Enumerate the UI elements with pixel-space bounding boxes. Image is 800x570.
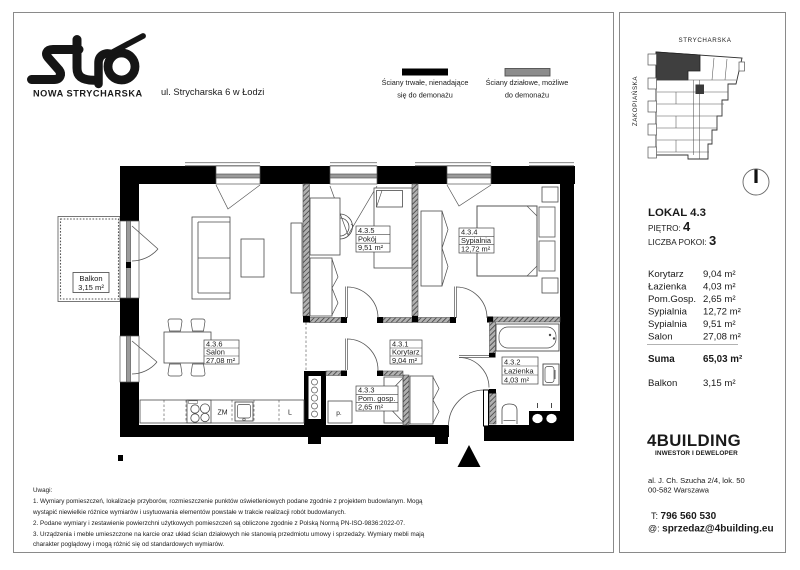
svg-text:3. Urządzenia i meble umieszcz: 3. Urządzenia i meble umieszczone na kar…: [33, 531, 425, 538]
svg-text:Korytarz: Korytarz: [648, 269, 684, 280]
svg-text:Uwagi:: Uwagi:: [33, 487, 52, 494]
svg-text:2,65 m²: 2,65 m²: [703, 294, 736, 305]
svg-text:4.3.2: 4.3.2: [504, 357, 520, 366]
svg-text:27,08 m²: 27,08 m²: [703, 332, 742, 343]
svg-text:ul. Strycharska 6 w Łodzi: ul. Strycharska 6 w Łodzi: [161, 87, 264, 97]
svg-text:Ściany trwałe, nienadające: Ściany trwałe, nienadające: [382, 78, 469, 87]
svg-text:2,65 m²: 2,65 m²: [358, 402, 384, 411]
svg-text:3,15 m²: 3,15 m²: [78, 283, 104, 292]
svg-text:9,04 m²: 9,04 m²: [703, 269, 736, 280]
svg-text:00-582 Warszawa: 00-582 Warszawa: [648, 486, 710, 495]
svg-text:T: 796 560 530: T: 796 560 530: [651, 511, 717, 522]
svg-text:2. Podane wymiary i zestawieni: 2. Podane wymiary i zestawienie powierzc…: [33, 520, 405, 527]
svg-text:Sypialnia: Sypialnia: [648, 319, 688, 330]
svg-text:Sypialnia: Sypialnia: [648, 307, 688, 318]
svg-text:9,04 m²: 9,04 m²: [392, 356, 418, 365]
svg-text:do demonażu: do demonażu: [505, 91, 549, 100]
svg-text:9,51 m²: 9,51 m²: [358, 243, 384, 252]
svg-text:Łazienka: Łazienka: [648, 282, 687, 293]
svg-text:p.: p.: [336, 410, 342, 417]
svg-text:Balkon: Balkon: [79, 274, 102, 283]
svg-text:Salon: Salon: [648, 332, 673, 343]
svg-text:wystąpić niewielkie różnice wy: wystąpić niewielkie różnice wymiarów i u…: [32, 509, 346, 516]
svg-text:al. J. Ch. Szucha 2/4, lok. 50: al. J. Ch. Szucha 2/4, lok. 50: [648, 476, 745, 485]
svg-text:1. Wymiary pomieszczeń, lokali: 1. Wymiary pomieszczeń, lokalizacje przy…: [33, 498, 423, 505]
svg-text:Ściany działowe, możliwe: Ściany działowe, możliwe: [486, 78, 569, 87]
svg-text:12,72 m²: 12,72 m²: [461, 244, 491, 253]
svg-text:Balkon: Balkon: [648, 378, 677, 389]
svg-text:Łazienka: Łazienka: [504, 366, 534, 375]
svg-text:L: L: [288, 410, 292, 417]
svg-text:9,51 m²: 9,51 m²: [703, 319, 736, 330]
svg-text:27,08 m²: 27,08 m²: [206, 356, 236, 365]
svg-text:NOWA STRYCHARSKA: NOWA STRYCHARSKA: [33, 89, 143, 99]
svg-text:4,03 m²: 4,03 m²: [703, 282, 736, 293]
svg-text:STRYCHARSKA: STRYCHARSKA: [679, 37, 732, 44]
svg-text:INWESTOR I DEWELOPER: INWESTOR I DEWELOPER: [655, 450, 738, 457]
svg-text:Suma: Suma: [648, 354, 675, 365]
svg-text:charakter poglądowy i mogą róż: charakter poglądowy i mogą różnić się od…: [33, 541, 224, 548]
svg-text:65,03 m²: 65,03 m²: [703, 354, 743, 365]
svg-text:się do demonażu: się do demonażu: [397, 91, 453, 100]
svg-text:ZM: ZM: [217, 410, 227, 417]
svg-text:4,03 m²: 4,03 m²: [504, 375, 530, 384]
svg-text:ZAKOPIAŃSKA: ZAKOPIAŃSKA: [632, 76, 639, 127]
svg-text:Pom.Gosp.: Pom.Gosp.: [648, 294, 696, 305]
svg-text:12,72 m²: 12,72 m²: [703, 307, 742, 318]
svg-text:3,15 m²: 3,15 m²: [703, 378, 736, 389]
svg-text:@: sprzedaz@4building.eu: @: sprzedaz@4building.eu: [648, 524, 774, 535]
svg-text:LOKAL 4.3: LOKAL 4.3: [648, 207, 706, 219]
svg-text:4BUILDING: 4BUILDING: [647, 431, 741, 450]
